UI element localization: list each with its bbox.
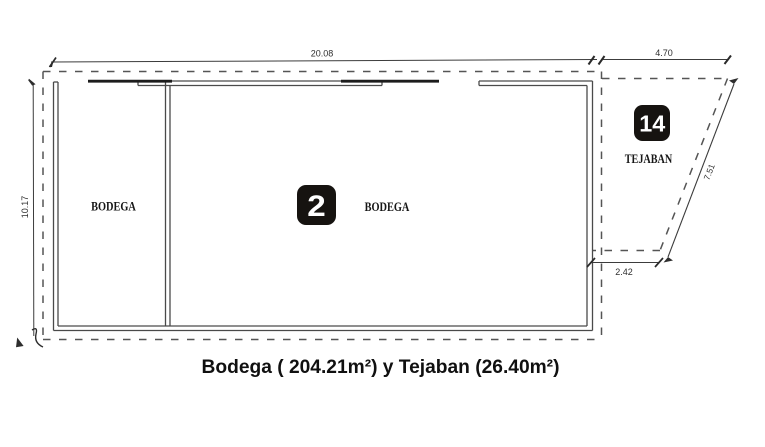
svg-text:TEJABAN: TEJABAN (625, 152, 673, 166)
svg-text:10.17: 10.17 (20, 196, 30, 219)
svg-text:2.42: 2.42 (615, 267, 633, 277)
svg-text:14: 14 (639, 111, 665, 137)
svg-text:BODEGA: BODEGA (365, 200, 410, 214)
svg-text:4.70: 4.70 (655, 48, 673, 58)
svg-text:20.08: 20.08 (311, 49, 334, 59)
svg-text:7.51: 7.51 (702, 162, 717, 181)
svg-text:2: 2 (307, 190, 326, 223)
svg-text:BODEGA: BODEGA (91, 200, 136, 214)
